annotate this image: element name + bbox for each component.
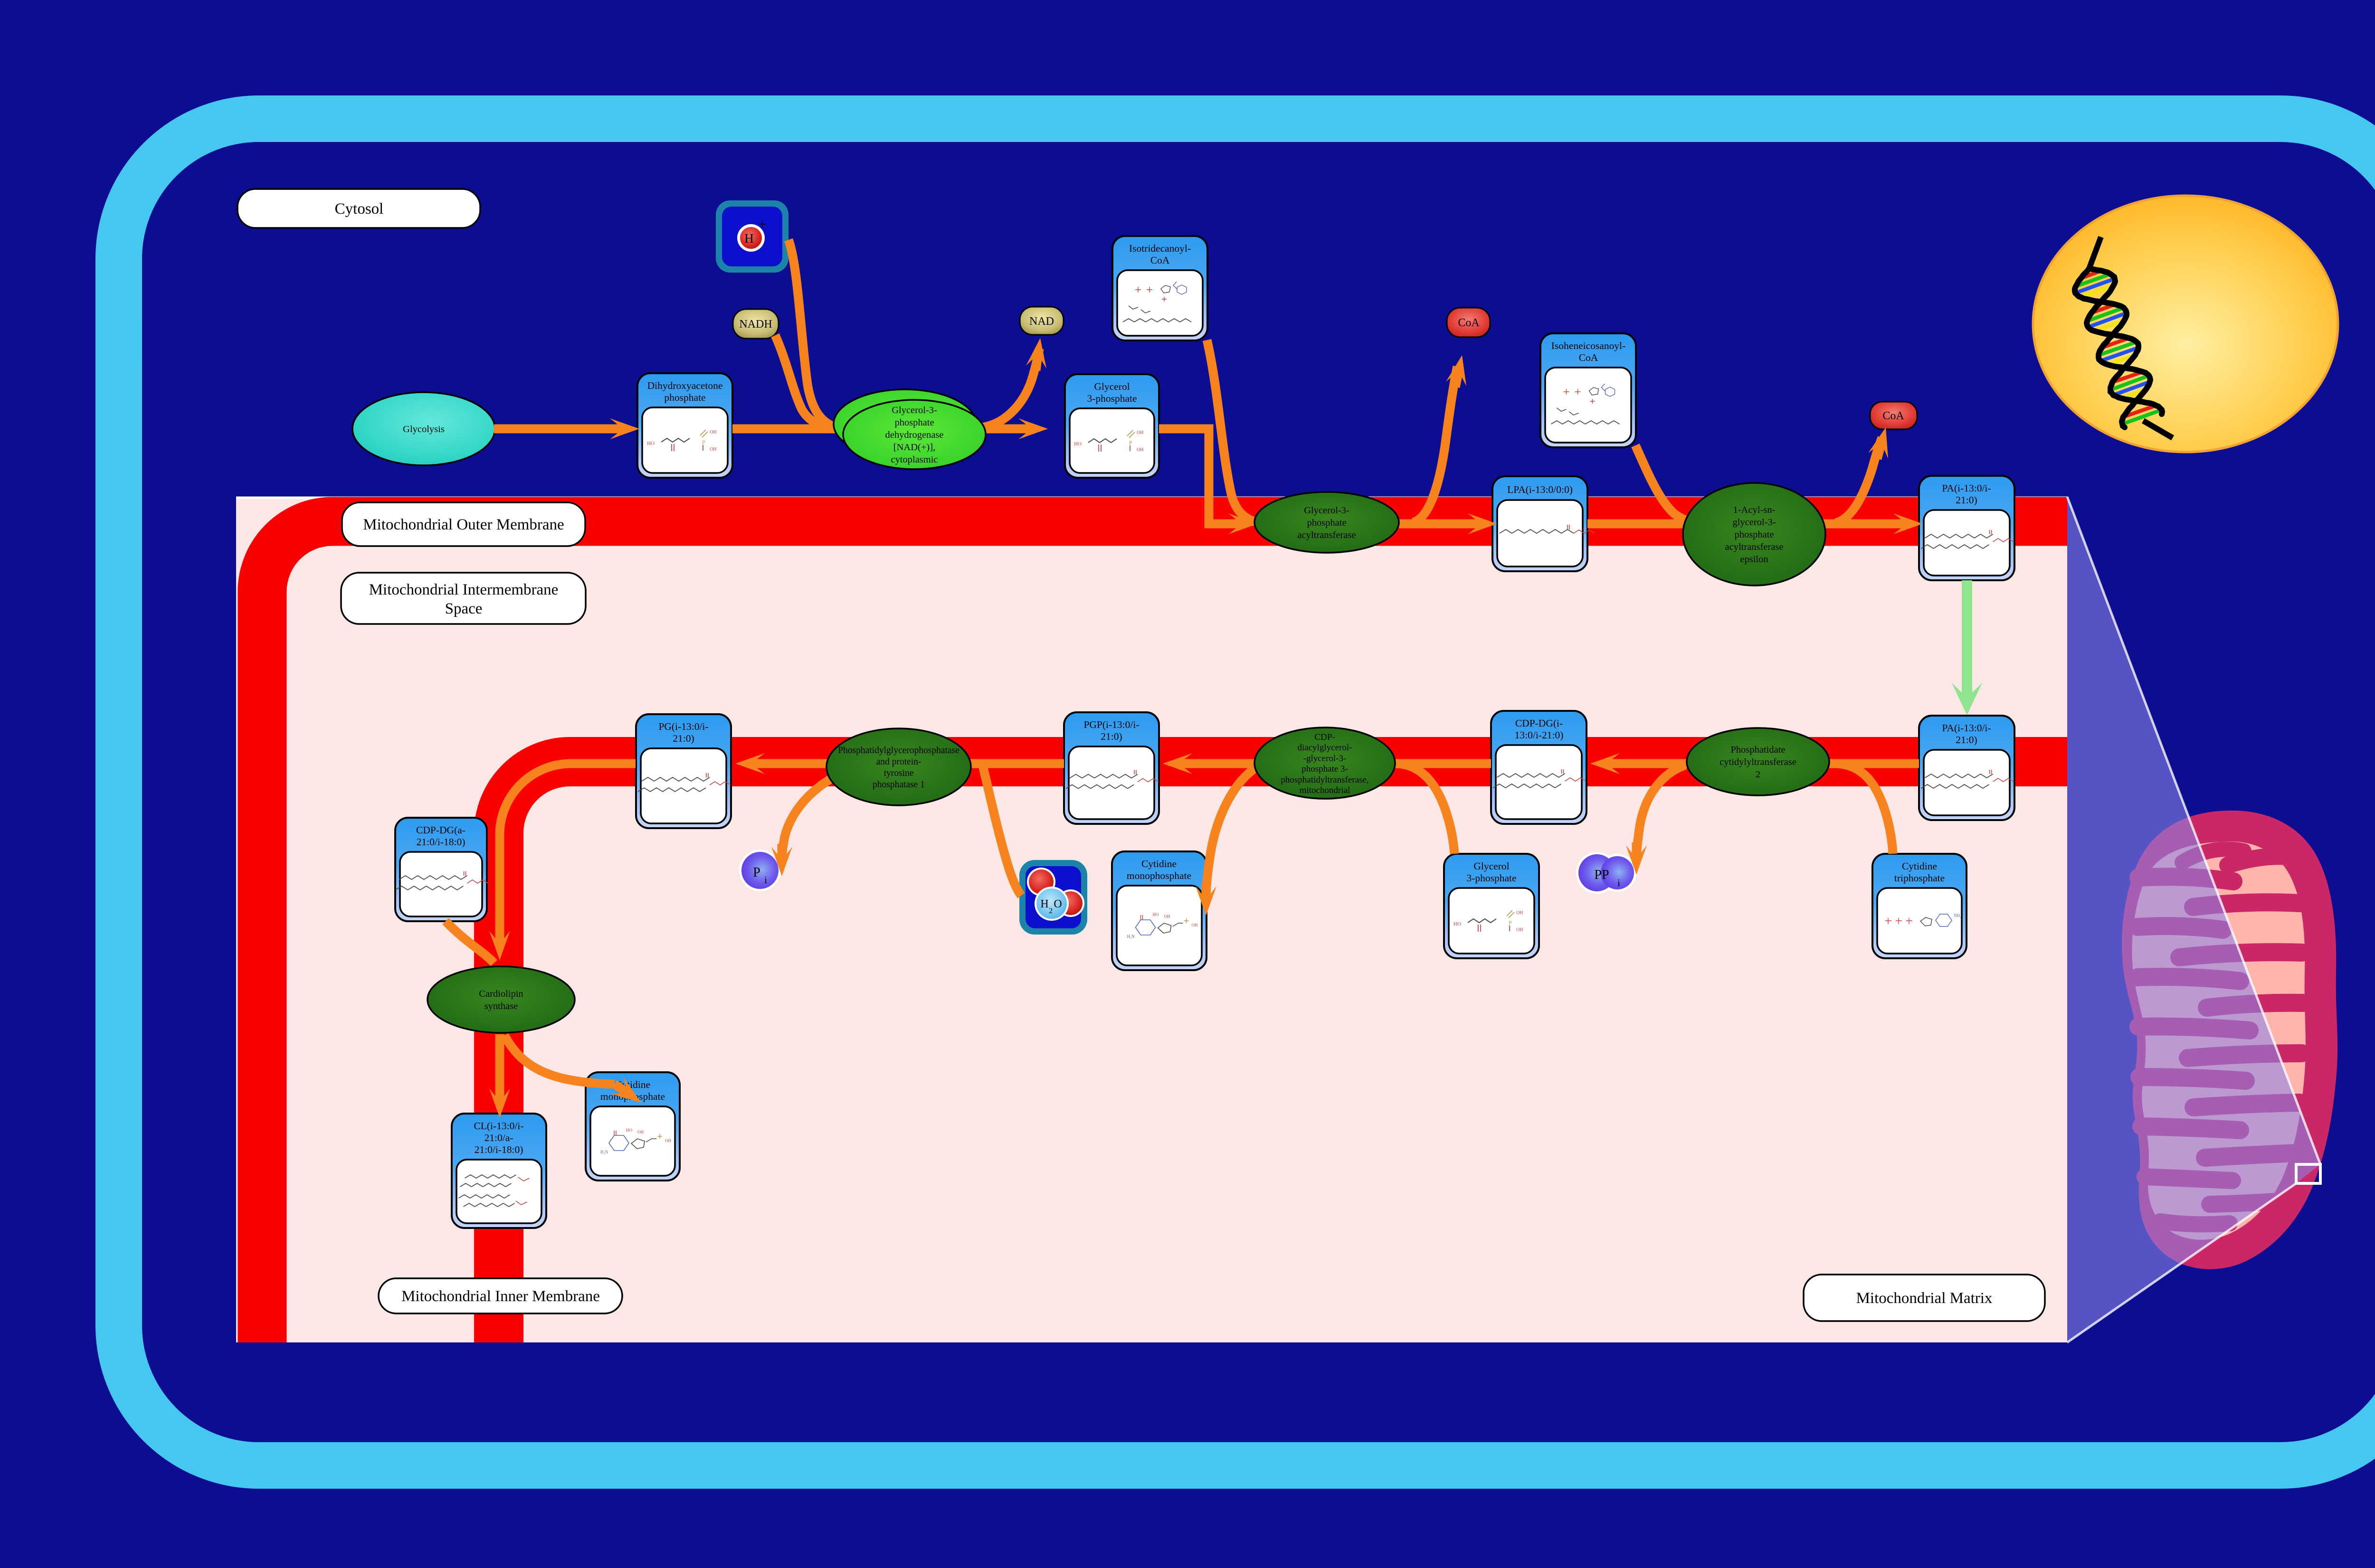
svg-text:mitochondrial: mitochondrial — [1300, 785, 1350, 795]
svg-text:HO: HO — [1153, 912, 1159, 917]
svg-text:+: + — [759, 217, 767, 232]
svg-text:21:0/i-18:0): 21:0/i-18:0) — [475, 1144, 523, 1155]
svg-text:21:0): 21:0) — [1956, 494, 1977, 506]
svg-text:21:0/a-: 21:0/a- — [484, 1132, 513, 1143]
svg-text:3-phosphate: 3-phosphate — [1466, 872, 1516, 884]
svg-text:21:0): 21:0) — [1956, 734, 1977, 746]
svg-text:13:0/i-21:0): 13:0/i-21:0) — [1515, 729, 1564, 741]
svg-text:CoA: CoA — [1150, 255, 1170, 266]
svg-text:3-phosphate: 3-phosphate — [1087, 393, 1137, 404]
svg-text:acyltransferase: acyltransferase — [1298, 530, 1356, 540]
svg-text:epsilon: epsilon — [1740, 554, 1768, 565]
svg-text:and protein-: and protein- — [876, 757, 921, 767]
svg-text:tyrosine: tyrosine — [884, 768, 914, 778]
svg-text:Glycerol-3-: Glycerol-3- — [892, 405, 937, 416]
svg-text:CL(i-13:0/i-: CL(i-13:0/i- — [474, 1120, 523, 1132]
svg-text:CoA: CoA — [1579, 352, 1598, 363]
svg-text:OH: OH — [1516, 927, 1523, 933]
svg-text:phosphate: phosphate — [894, 417, 934, 428]
svg-text:Mitochondrial Outer Membrane: Mitochondrial Outer Membrane — [363, 516, 564, 533]
svg-text:Isoheneicosanoyl-: Isoheneicosanoyl- — [1551, 340, 1625, 351]
svg-text:OH: OH — [665, 1138, 671, 1143]
svg-text:LPA(i-13:0/0:0): LPA(i-13:0/0:0) — [1507, 484, 1573, 495]
svg-text:HO: HO — [1074, 441, 1082, 447]
svg-text:Isotridecanoyl-: Isotridecanoyl- — [1129, 243, 1191, 254]
svg-text:H₂N: H₂N — [1127, 934, 1135, 939]
svg-text:H: H — [744, 231, 754, 246]
svg-text:Glycolysis: Glycolysis — [403, 424, 445, 435]
svg-text:OH: OH — [637, 1130, 644, 1134]
svg-text:P: P — [1509, 919, 1512, 926]
svg-text:P: P — [753, 865, 760, 880]
svg-text:Mitochondrial Matrix: Mitochondrial Matrix — [1856, 1290, 1993, 1307]
svg-text:PA(i-13:0/i-: PA(i-13:0/i- — [1942, 722, 1991, 734]
svg-text:NAD: NAD — [1029, 315, 1054, 328]
svg-text:Space: Space — [445, 600, 483, 617]
svg-text:OH: OH — [1516, 910, 1523, 916]
svg-text:phosphatase 1: phosphatase 1 — [873, 780, 925, 790]
svg-text:cytidylyltransferase: cytidylyltransferase — [1719, 757, 1796, 767]
svg-text:HO: HO — [1453, 921, 1461, 927]
svg-text:Mitochondrial Intermembrane: Mitochondrial Intermembrane — [369, 581, 559, 598]
svg-text:HO: HO — [647, 441, 655, 446]
svg-text:i: i — [1617, 877, 1620, 888]
svg-text:Cytidine: Cytidine — [1902, 860, 1937, 872]
svg-text:dehydrogenase: dehydrogenase — [885, 430, 944, 440]
svg-text:Glycerol: Glycerol — [1473, 860, 1509, 872]
svg-text:Phosphatidate: Phosphatidate — [1730, 745, 1785, 755]
svg-text:Cytosol: Cytosol — [335, 200, 384, 217]
svg-text:NH₂: NH₂ — [1954, 913, 1961, 918]
svg-text:Glycerol-3-: Glycerol-3- — [1304, 505, 1349, 516]
svg-text:phosphate: phosphate — [1307, 518, 1346, 528]
svg-text:H₂N: H₂N — [600, 1150, 608, 1154]
svg-text:Mitochondrial Inner Membrane: Mitochondrial Inner Membrane — [401, 1288, 600, 1305]
svg-text:OH: OH — [1137, 430, 1143, 435]
svg-text:PA(i-13:0/i-: PA(i-13:0/i- — [1942, 482, 1991, 494]
svg-text:P: P — [1129, 439, 1132, 446]
svg-text:21:0): 21:0) — [673, 733, 694, 744]
svg-text:Glycerol: Glycerol — [1094, 381, 1130, 392]
svg-text:CDP-DG(i-: CDP-DG(i- — [1515, 718, 1563, 729]
svg-text:2: 2 — [1049, 907, 1053, 915]
svg-text:PP: PP — [1594, 868, 1609, 882]
svg-text:PGP(i-13:0/i-: PGP(i-13:0/i- — [1083, 719, 1139, 730]
svg-text:NADH: NADH — [739, 318, 772, 331]
svg-text:HO: HO — [626, 1128, 632, 1133]
svg-text:CDP-DG(a-: CDP-DG(a- — [416, 824, 465, 836]
svg-text:-glycerol-3-: -glycerol-3- — [1303, 754, 1347, 764]
svg-text:21:0/i-18:0): 21:0/i-18:0) — [417, 836, 465, 848]
svg-text:21:0): 21:0) — [1101, 731, 1122, 742]
svg-text:acyltransferase: acyltransferase — [1725, 542, 1784, 552]
svg-text:Cardiolipin: Cardiolipin — [479, 989, 523, 999]
svg-text:2: 2 — [1756, 769, 1760, 780]
svg-text:synthase: synthase — [484, 1001, 518, 1011]
svg-text:CDP-: CDP- — [1314, 732, 1335, 742]
svg-text:CoA: CoA — [1458, 317, 1480, 329]
svg-text:cytoplasmic: cytoplasmic — [891, 454, 938, 465]
svg-text:Dihydroxyacetone: Dihydroxyacetone — [647, 380, 723, 391]
svg-text:1-Acyl-sn-: 1-Acyl-sn- — [1733, 505, 1776, 515]
svg-text:monophosphate: monophosphate — [1127, 870, 1191, 881]
svg-text:PG(i-13:0/i-: PG(i-13:0/i- — [658, 721, 708, 732]
svg-text:triphosphate: triphosphate — [1894, 872, 1945, 884]
svg-text:P: P — [702, 439, 705, 445]
svg-text:[NAD(+)],: [NAD(+)], — [893, 442, 935, 453]
svg-text:OH: OH — [710, 447, 716, 452]
svg-text:OH: OH — [710, 430, 716, 435]
svg-text:i: i — [764, 874, 767, 886]
svg-text:Phosphatidylglycerophosphatase: Phosphatidylglycerophosphatase — [838, 746, 959, 756]
svg-text:OH: OH — [1192, 923, 1198, 927]
svg-text:Cytidine: Cytidine — [1141, 858, 1177, 869]
svg-text:OH: OH — [1137, 447, 1143, 453]
svg-text:phosphatidyltransferase,: phosphatidyltransferase, — [1281, 775, 1368, 785]
svg-text:CoA: CoA — [1882, 410, 1904, 422]
svg-text:H: H — [1040, 898, 1048, 910]
svg-text:diacylglycerol-: diacylglycerol- — [1297, 743, 1352, 753]
svg-text:phosphate: phosphate — [664, 392, 705, 403]
svg-text:OH: OH — [1164, 914, 1170, 919]
svg-text:phosphate: phosphate — [1734, 529, 1774, 540]
svg-text:phosphate 3-: phosphate 3- — [1301, 764, 1348, 774]
svg-text:O: O — [1054, 898, 1062, 910]
svg-text:glycerol-3-: glycerol-3- — [1732, 517, 1776, 528]
